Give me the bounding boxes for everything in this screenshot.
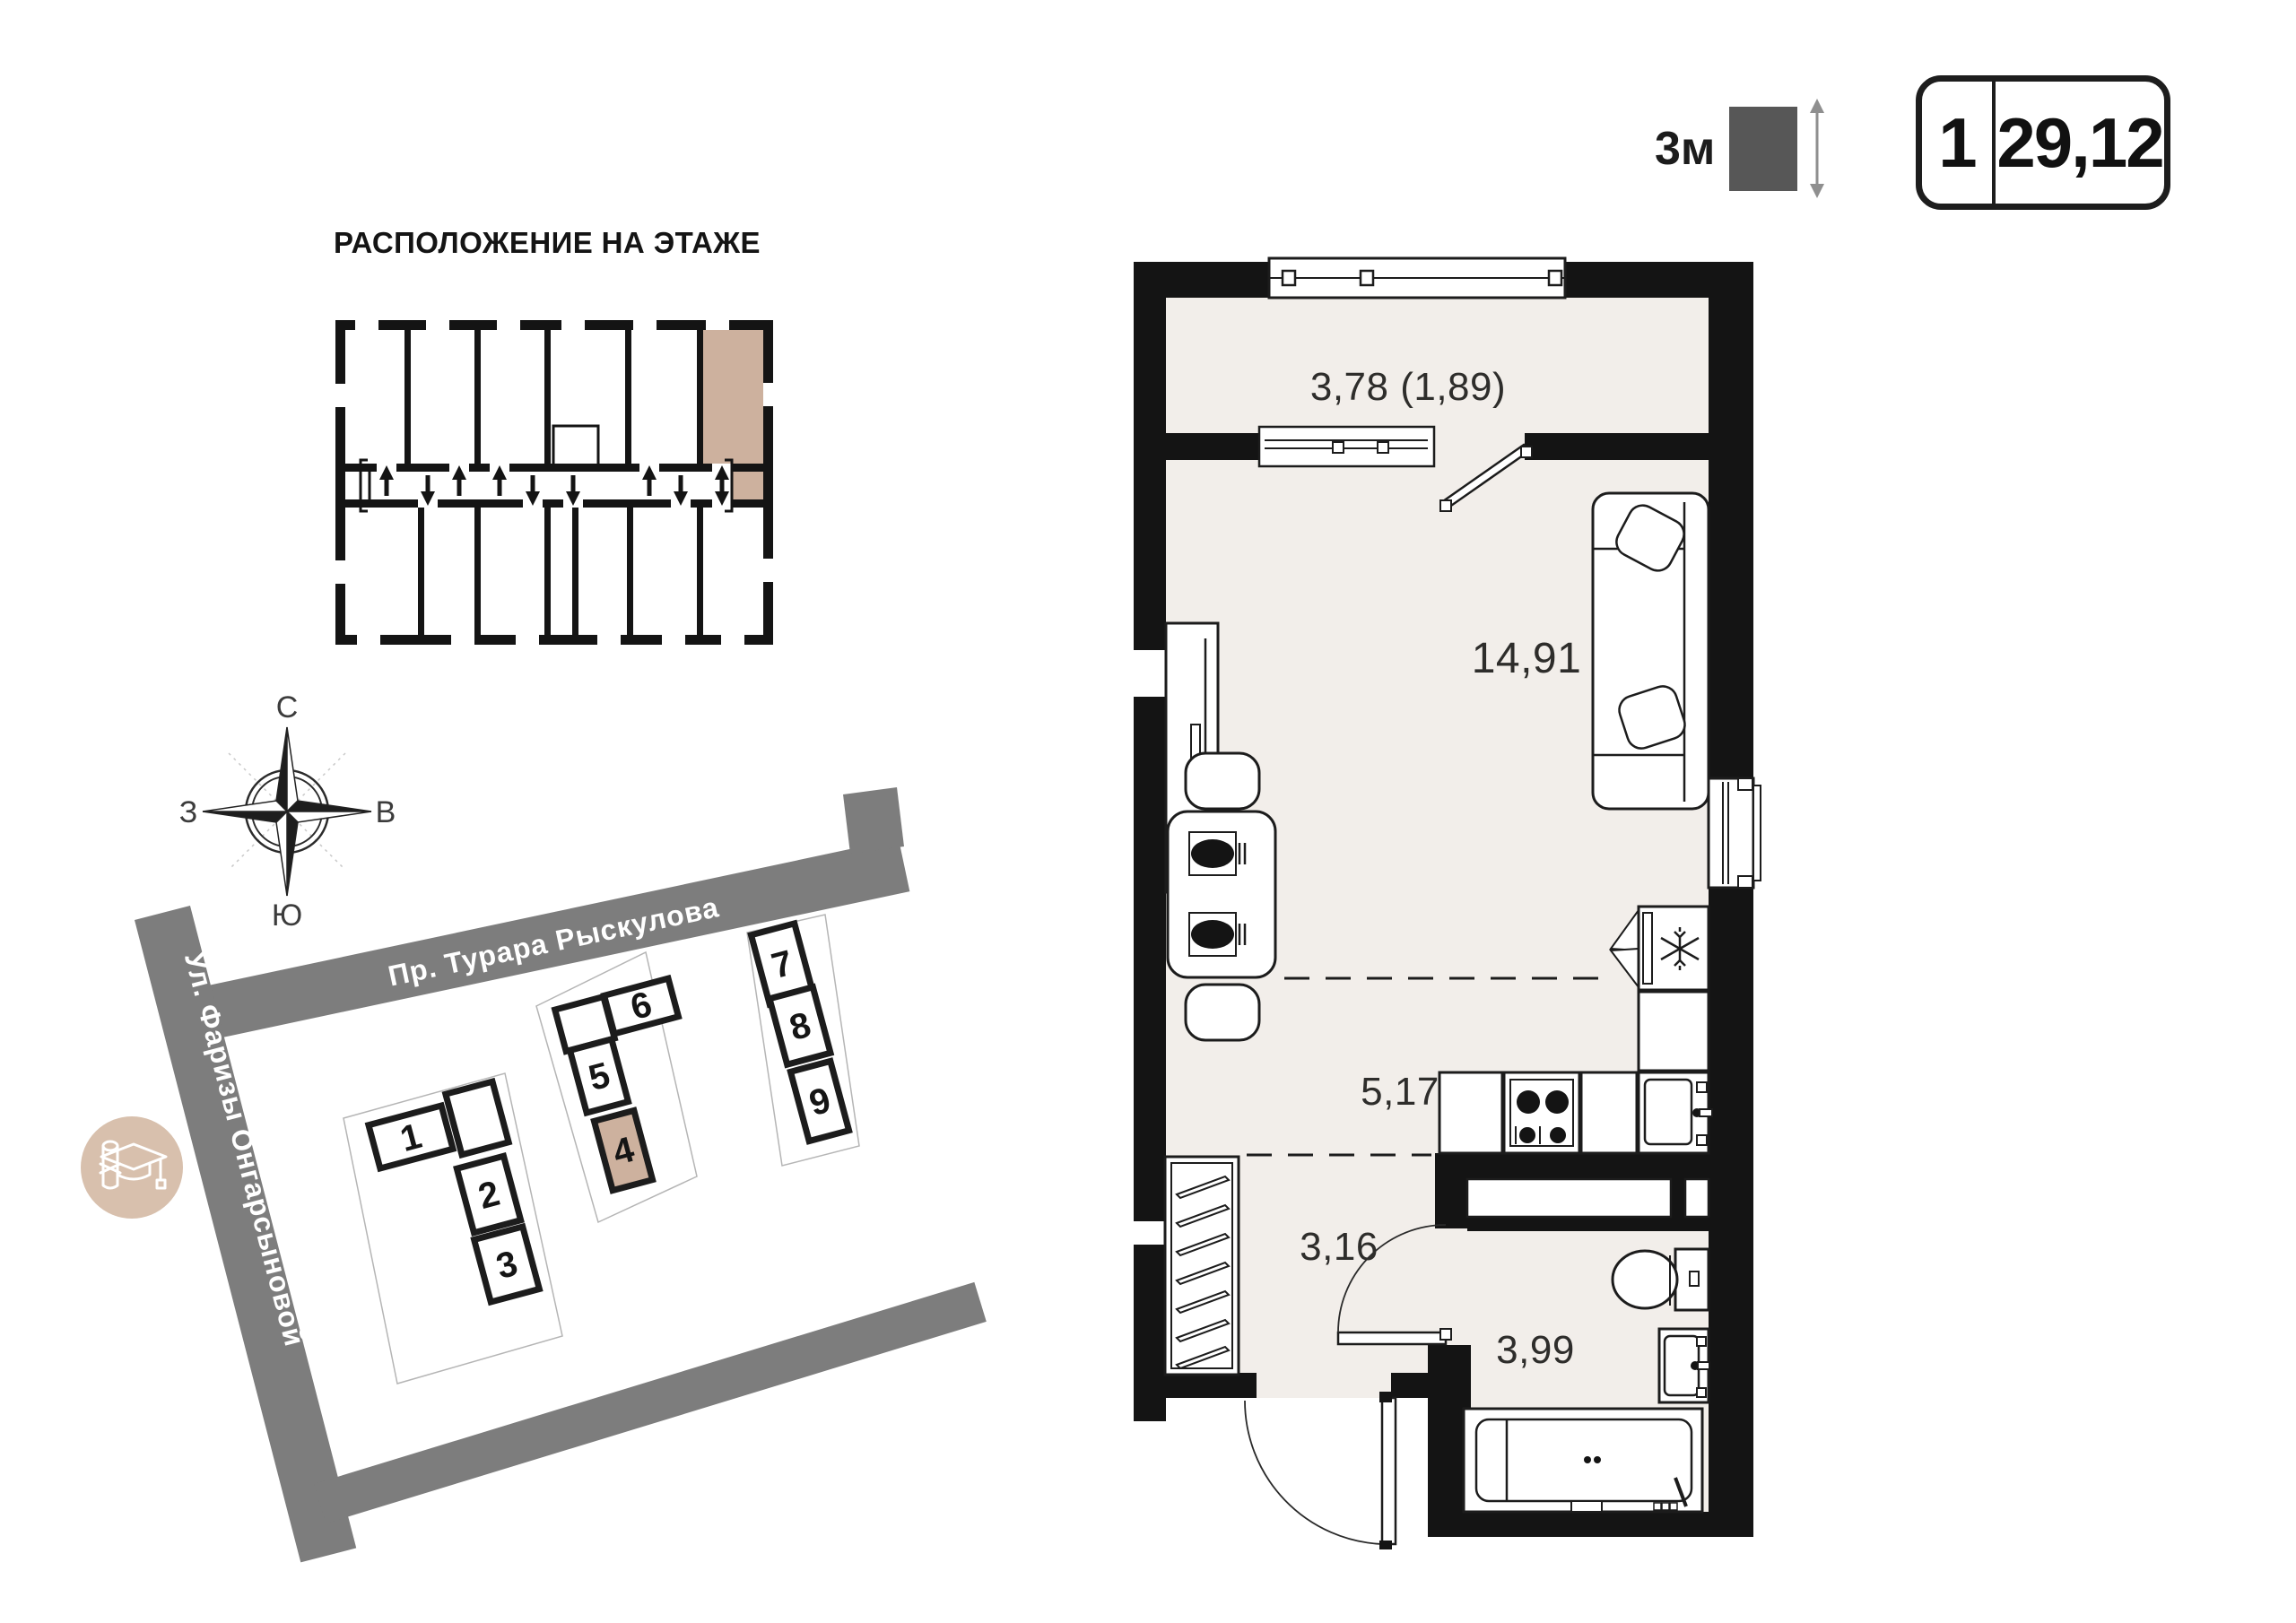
bath-niche: [1467, 1179, 1671, 1217]
ceiling-height-label: 3м: [1655, 122, 1715, 176]
hallway-area-label: 3,16: [1300, 1225, 1378, 1269]
kitchen-sink: [1639, 1072, 1712, 1153]
floorplan-page: РАСПОЛОЖЕНИЕ НА ЭТАЖЕ: [0, 0, 2296, 1623]
right-window: [1709, 778, 1761, 888]
entrance-door: [1245, 1392, 1396, 1549]
hall-closet: [1165, 1157, 1239, 1375]
compass-east: В: [376, 795, 396, 829]
ceiling-height-widget: 3м: [1655, 97, 1879, 200]
balcony-area-label: 3,78 (1,89): [1310, 365, 1506, 409]
rooms-count: 1: [1922, 82, 1996, 204]
compass-south: Ю: [272, 898, 302, 933]
chair: [1186, 985, 1259, 1040]
sofa: [1593, 493, 1709, 809]
stair-core: [553, 426, 598, 464]
unit-plan: 3,78 (1,89) 14,91 5,17 3,16 3,99: [1112, 233, 1776, 1605]
corridor-walls: [345, 464, 763, 508]
kitchen-counter: [1439, 1072, 1712, 1153]
height-arrow-icon: [1797, 97, 1837, 200]
street-branch: [843, 787, 904, 854]
floor-location-plan: [335, 320, 773, 645]
living-area-label: 14,91: [1472, 635, 1582, 682]
street-bottom: [314, 1282, 987, 1523]
total-area: 29,12: [1996, 82, 2164, 204]
education-poi: [81, 1116, 183, 1219]
compass-west: З: [179, 795, 198, 829]
unit-partitions: [404, 330, 703, 635]
bathroom-sink: [1659, 1329, 1709, 1402]
ceiling-height-square: [1729, 107, 1797, 191]
compass-north: С: [276, 690, 299, 725]
page-title: РАСПОЛОЖЕНИЕ НА ЭТАЖЕ: [334, 226, 761, 260]
kitchen-area-label: 5,17: [1361, 1070, 1439, 1114]
compass-rose: С В Ю З: [179, 690, 396, 933]
unit-summary-badge: 1 29,12: [1916, 75, 2170, 210]
chair: [1186, 753, 1259, 809]
balcony-window: [1269, 258, 1565, 298]
kitchen-cabinet: [1639, 992, 1709, 1071]
bathroom-area-label: 3,99: [1496, 1328, 1575, 1372]
toilet: [1613, 1249, 1709, 1310]
bathtub: [1464, 1409, 1702, 1512]
site-map: С В Ю З Пр. Турара Рыскулова Ул. Фаризы …: [54, 690, 1040, 1596]
